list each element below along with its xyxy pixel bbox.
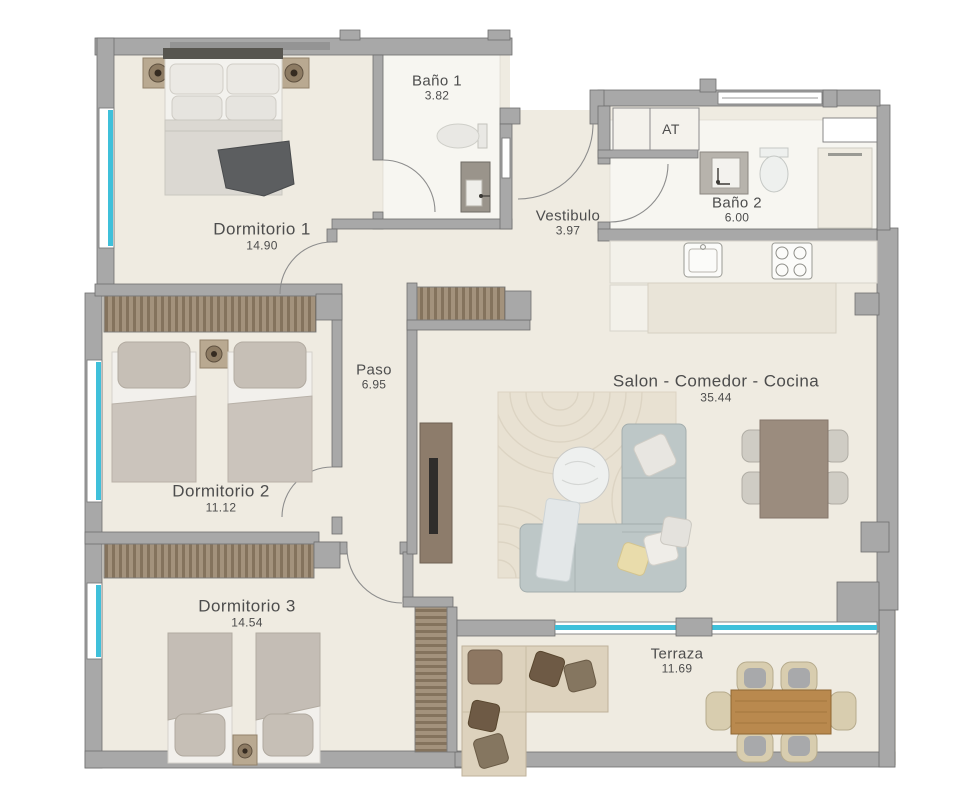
room-area: 6.00: [712, 212, 762, 226]
chair: [830, 692, 856, 730]
room-label-at: AT: [662, 121, 680, 137]
room-area: 11.69: [651, 663, 704, 677]
vanity: [818, 148, 872, 228]
room-name: Baño 1: [412, 72, 462, 89]
single-bed: [256, 633, 320, 763]
room-area: 6.95: [356, 379, 392, 393]
room-name: AT: [662, 121, 680, 137]
wardrobe-dormitorio1: [104, 296, 316, 332]
room-name: Baño 2: [712, 194, 762, 211]
room-area: 3.97: [536, 225, 600, 239]
coffee-table: [553, 447, 609, 503]
toilet-icon: [437, 124, 479, 148]
pillow: [226, 96, 276, 120]
room-area: 14.90: [213, 239, 310, 253]
room-label-salon: Salon - Comedor - Cocina 35.44: [613, 371, 819, 404]
pillow: [660, 516, 692, 548]
tv: [429, 458, 438, 534]
room-label-dormitorio1: Dormitorio 1 14.90: [213, 219, 310, 252]
kitchen-counter: [610, 241, 877, 283]
pillow: [563, 659, 597, 693]
wardrobe-dormitorio3: [415, 607, 447, 752]
room-area: 3.82: [412, 90, 462, 104]
wardrobe-dormitorio2: [104, 544, 314, 578]
kitchen-peninsula: [648, 283, 836, 333]
floor-plan-canvas: [0, 0, 964, 785]
pillow: [467, 699, 500, 732]
room-name: Paso: [356, 361, 392, 378]
duct-shaft: [502, 138, 510, 178]
room-label-terraza: Terraza 11.69: [651, 645, 704, 676]
room-name: Dormitorio 1: [213, 219, 310, 239]
room-label-dormitorio3: Dormitorio 3 14.54: [198, 596, 295, 629]
window-right-wall: [823, 118, 877, 142]
at-closet: [613, 108, 699, 150]
toilet-icon: [760, 156, 788, 192]
floor-plan: Dormitorio 1 14.90 Baño 1 3.82 Vestibulo…: [0, 0, 964, 785]
room-name: Dormitorio 3: [198, 596, 295, 616]
headboard: [163, 48, 283, 59]
room-name: Terraza: [651, 645, 704, 662]
room-area: 35.44: [613, 391, 819, 405]
room-area: 14.54: [198, 616, 295, 630]
hall-closet: [417, 287, 505, 320]
room-name: Vestibulo: [536, 207, 600, 224]
pillow: [170, 64, 223, 94]
room-name: Salon - Comedor - Cocina: [613, 371, 819, 391]
room-label-banyo1: Baño 1 3.82: [412, 72, 462, 103]
single-bed: [168, 633, 232, 763]
room-area: 11.12: [172, 501, 269, 515]
kitchen-cabinet: [610, 285, 648, 331]
room-label-dormitorio2: Dormitorio 2 11.12: [172, 481, 269, 514]
single-bed: [228, 342, 312, 482]
room-label-paso: Paso 6.95: [356, 361, 392, 392]
room-label-vestibulo: Vestibulo 3.97: [536, 207, 600, 238]
pillow: [227, 64, 279, 94]
room-name: Dormitorio 2: [172, 481, 269, 501]
single-bed: [112, 342, 196, 482]
dining-table: [760, 420, 828, 518]
pillow: [468, 650, 502, 684]
chair: [706, 692, 732, 730]
throw-blanket: [218, 141, 294, 196]
pillow: [172, 96, 222, 120]
terrace-glass-mullion: [676, 618, 712, 636]
room-label-banyo2: Baño 2 6.00: [712, 194, 762, 225]
